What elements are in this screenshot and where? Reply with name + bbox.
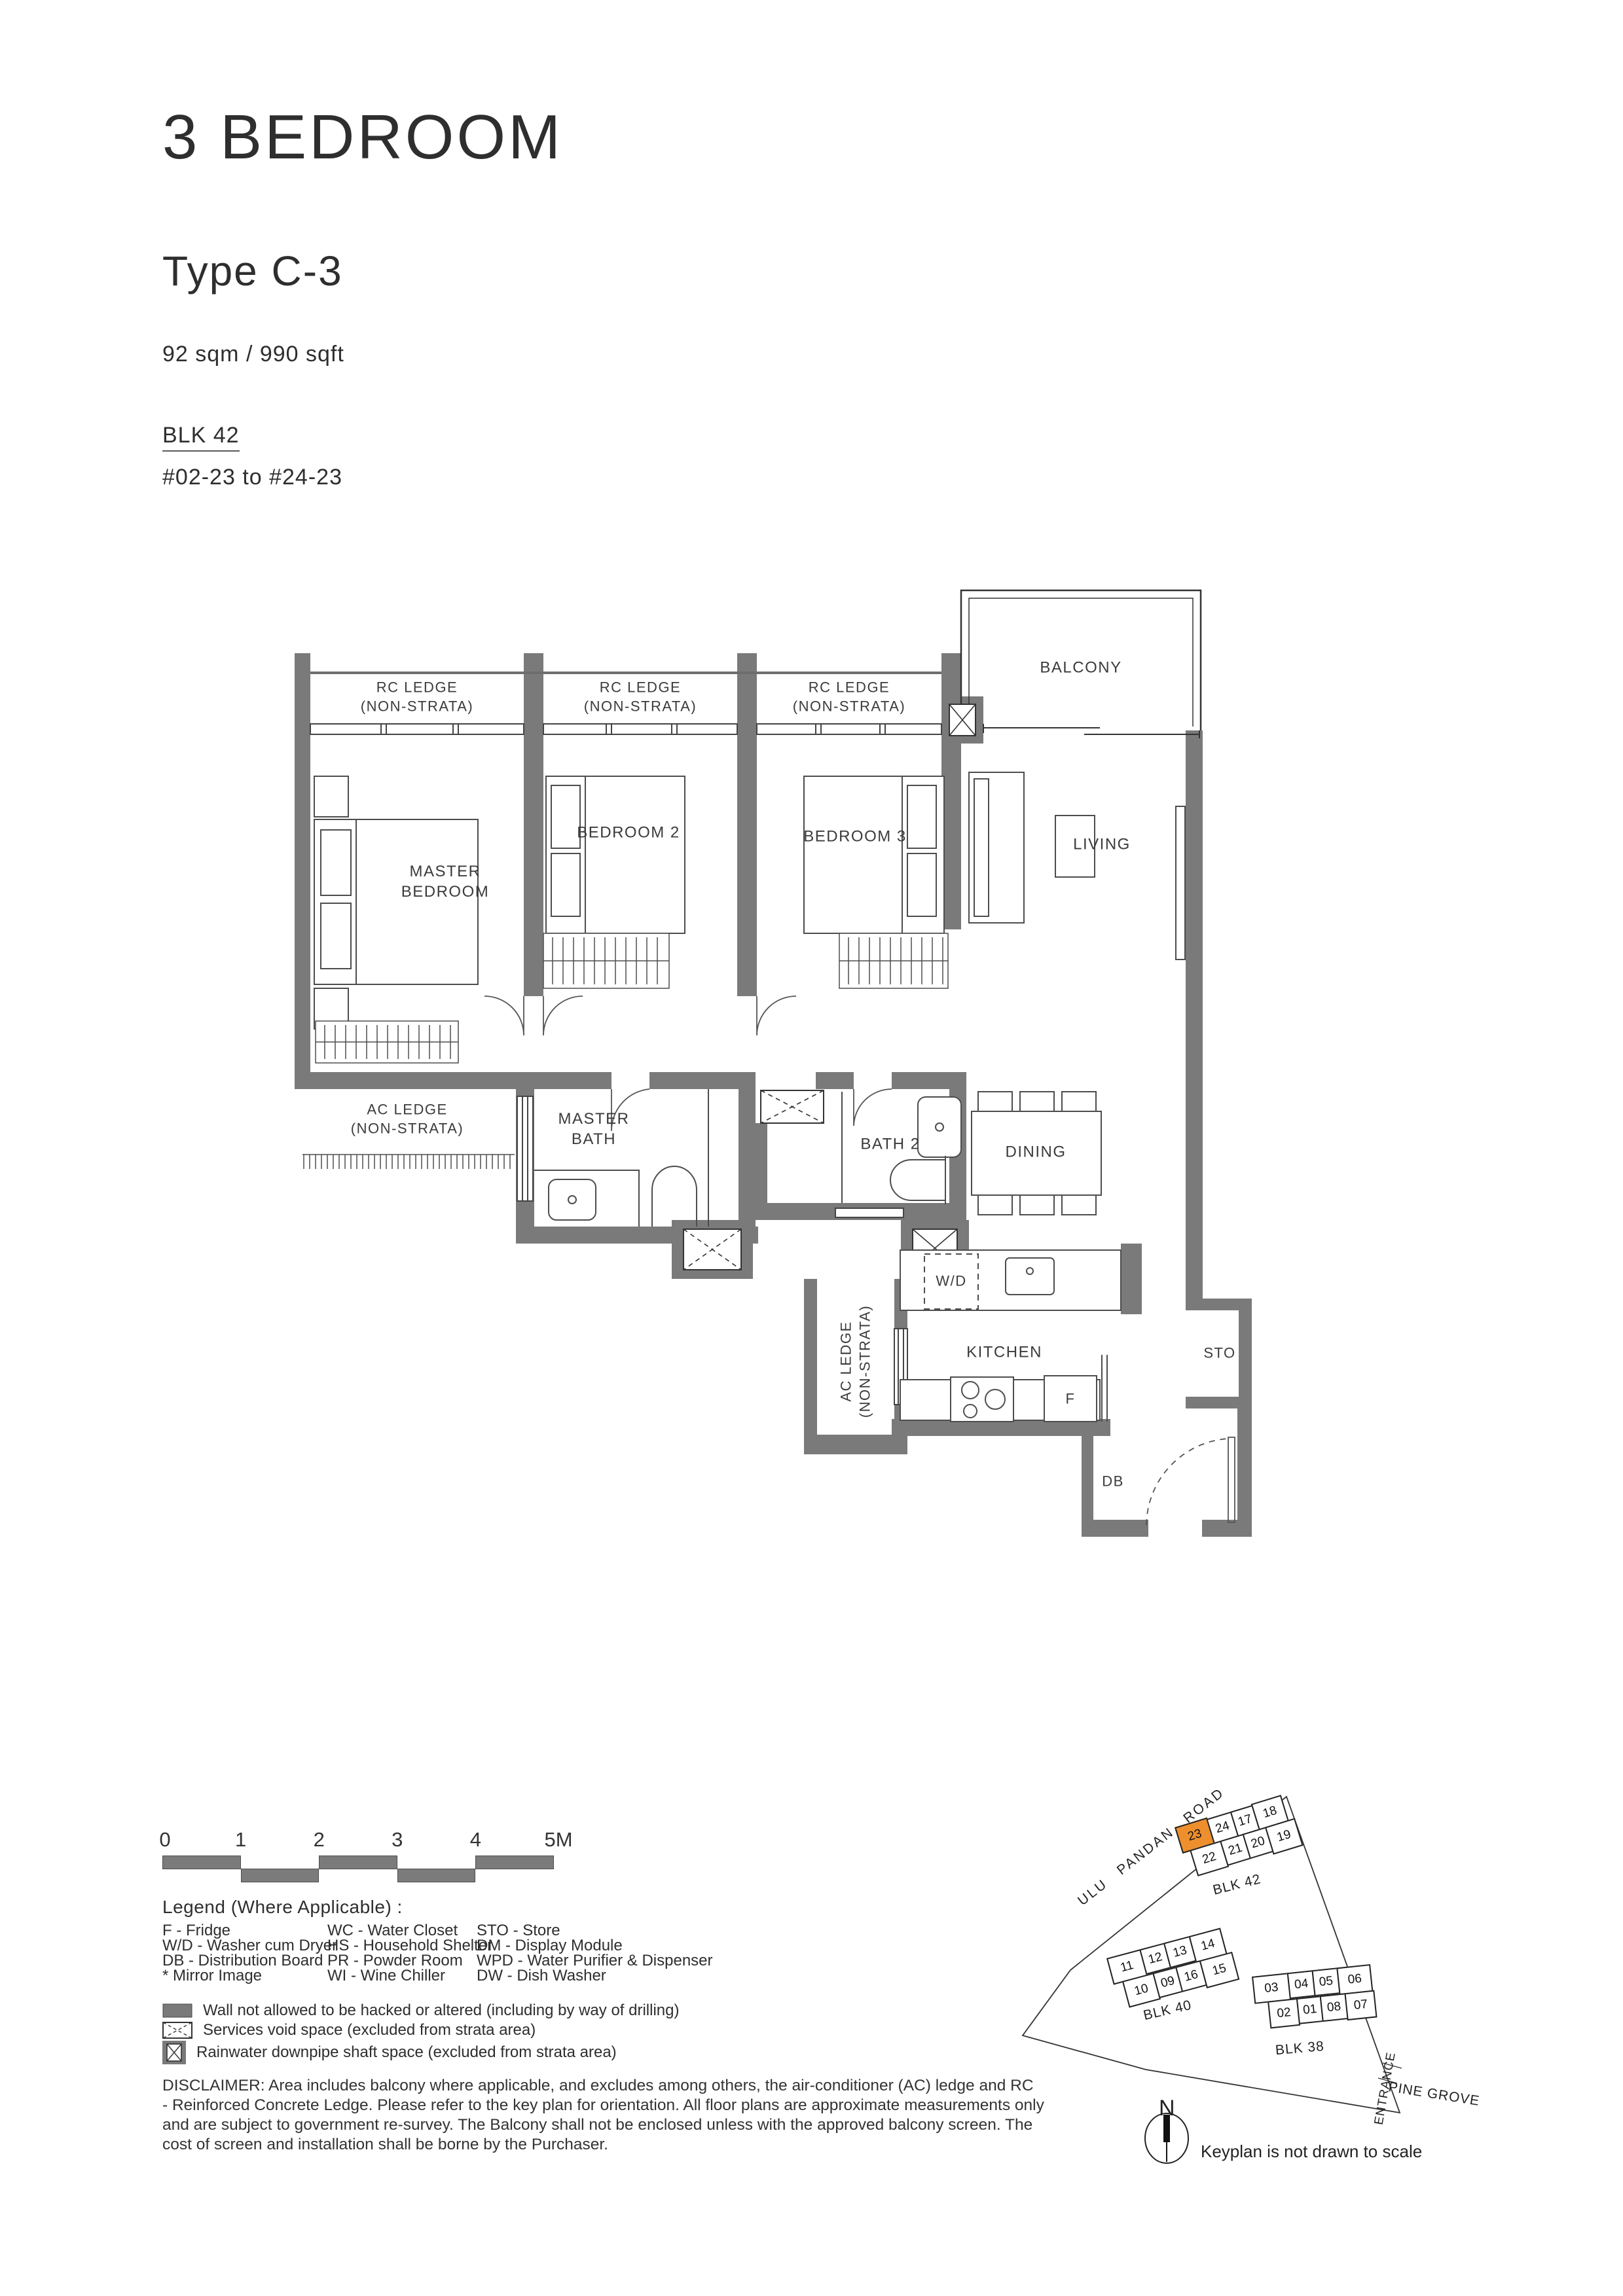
services-void-swatch-icon [162,2022,192,2039]
scale-segment [319,1856,397,1869]
scale-segment [162,1856,241,1869]
pillow [551,853,580,916]
label-balcony: BALCONY [1040,657,1122,677]
legend-symbol-text: Services void space (excluded from strat… [203,2021,536,2039]
unit-box-07: 07 [1344,1990,1377,2021]
unit-box-02: 02 [1267,1998,1300,2029]
legend-table: F - Fridge W/D - Washer cum Dryer DB - D… [162,1923,784,1983]
scale-segment [241,1869,319,1882]
chair [1020,1092,1054,1111]
label-store: STO [1203,1344,1235,1363]
pillow [551,785,580,848]
legend-item: DB - Distribution Board [162,1953,327,1968]
floorplan-brochure-page: { "header": { "title": "3 BEDROOM", "typ… [0,0,1623,2296]
unit-type: Type C-3 [162,250,343,292]
scale-tick: 2 [314,1828,325,1852]
label-rc-ledge-2: RC LEDGE (NON-STRATA) [584,678,697,715]
legend-symbol-wall: Wall not allowed to be hacked or altered… [162,2001,680,2020]
unit-box-05: 05 [1311,1967,1340,1996]
chair [1062,1092,1096,1111]
floor-plan-drawing [288,576,1309,1597]
scale-tick: 5M [544,1828,572,1852]
legend-item: STO - Store [477,1923,784,1938]
label-rc-ledge-3: RC LEDGE (NON-STRATA) [793,678,905,715]
nightstand [314,776,348,817]
pillow [321,903,351,969]
scale-tick: 4 [470,1828,481,1852]
scale-segment [475,1856,554,1869]
scale-bar: 0 1 2 3 4 5M [162,1828,555,1887]
toilet [890,1156,945,1204]
label-dining: DINING [1006,1141,1067,1162]
pillow [907,853,936,916]
scale-segment [397,1869,476,1882]
legend-item: * Mirror Image [162,1968,327,1983]
label-master-bedroom: MASTER BEDROOM [401,861,490,902]
keyplan-note: Keyplan is not drawn to scale [1201,2142,1422,2162]
label-master-bath: MASTER BATH [558,1109,629,1149]
hob [951,1377,1013,1422]
pillow [321,830,351,895]
chair [978,1092,1012,1111]
wardrobe-bed3 [839,933,948,988]
label-ac-ledge-vertical: AC LEDGE (NON-STRATA) [837,1305,874,1418]
legend-item: HS - Household Shelter [327,1938,477,1953]
legend-symbol-text: Rainwater downpipe shaft space (excluded… [196,2043,617,2062]
chair [1020,1195,1054,1215]
north-label: N [1159,2096,1176,2121]
wardrobe-master [316,1021,458,1063]
legend-item: DM - Display Module [477,1938,784,1953]
floor-plan: RC LEDGE (NON-STRATA) RC LEDGE (NON-STRA… [288,576,1309,1597]
unit-box-08: 08 [1320,1993,1349,2022]
keyplan: ULU PANDAN ROAD PINE GROVE ENTRANCE N Ke… [982,1761,1623,2219]
sofa-back [974,779,989,916]
legend-title: Legend (Where Applicable) : [162,1897,403,1918]
unit-area: 92 sqm / 990 sqft [162,343,344,365]
kitchen-sink [1006,1258,1054,1295]
scale-tick: 3 [392,1828,403,1852]
unit-range: #02-23 to #24-23 [162,466,342,488]
label-rc-ledge-1: RC LEDGE (NON-STRATA) [361,678,473,715]
ac-ledge-hatch [302,1155,515,1169]
block-number: BLK 42 [162,424,240,452]
unit-box-04: 04 [1287,1970,1316,1999]
label-kitchen: KITCHEN [966,1342,1042,1362]
label-ac-ledge: AC LEDGE (NON-STRATA) [351,1100,464,1138]
legend-item: DW - Dish Washer [477,1968,784,1983]
legend-item: F - Fridge [162,1923,327,1938]
legend-item: WC - Water Closet [327,1923,477,1938]
label-bedroom2: BEDROOM 2 [577,822,680,842]
basin [918,1097,961,1157]
wall-swatch-icon [162,2003,192,2018]
legend-symbol-text: Wall not allowed to be hacked or altered… [203,2001,680,2020]
legend-item: PR - Powder Room [327,1953,477,1968]
page-title: 3 BEDROOM [162,106,563,169]
legend-item: W/D - Washer cum Dryer [162,1938,327,1953]
pillow [907,785,936,848]
legend-symbol-services-void: Services void space (excluded from strat… [162,2021,536,2039]
toilet [652,1166,697,1227]
legend-col-3: STO - Store DM - Display Module WPD - Wa… [477,1923,784,1983]
legend-col-1: F - Fridge W/D - Washer cum Dryer DB - D… [162,1923,327,1983]
legend-item: WI - Wine Chiller [327,1968,477,1983]
block-number-text: BLK 42 [162,424,240,452]
basin [549,1179,596,1220]
label-db: DB [1102,1473,1124,1492]
legend-col-2: WC - Water Closet HS - Household Shelter… [327,1923,477,1983]
scale-tick: 1 [235,1828,246,1852]
chair [978,1195,1012,1215]
label-fridge: F [1066,1390,1076,1409]
label-living: LIVING [1073,834,1131,854]
legend-item: WPD - Water Purifier & Dispenser [477,1953,784,1968]
rainwater-swatch-icon [162,2041,186,2064]
label-bedroom3: BEDROOM 3 [803,826,907,846]
label-wd: W/D [936,1272,966,1291]
wardrobe-bed2 [543,933,669,988]
tv-console [1176,806,1185,960]
scale-tick: 0 [159,1828,170,1852]
label-bath2: BATH 2 [860,1134,920,1154]
chair [1062,1195,1096,1215]
legend-symbol-rainwater: Rainwater downpipe shaft space (excluded… [162,2041,617,2064]
